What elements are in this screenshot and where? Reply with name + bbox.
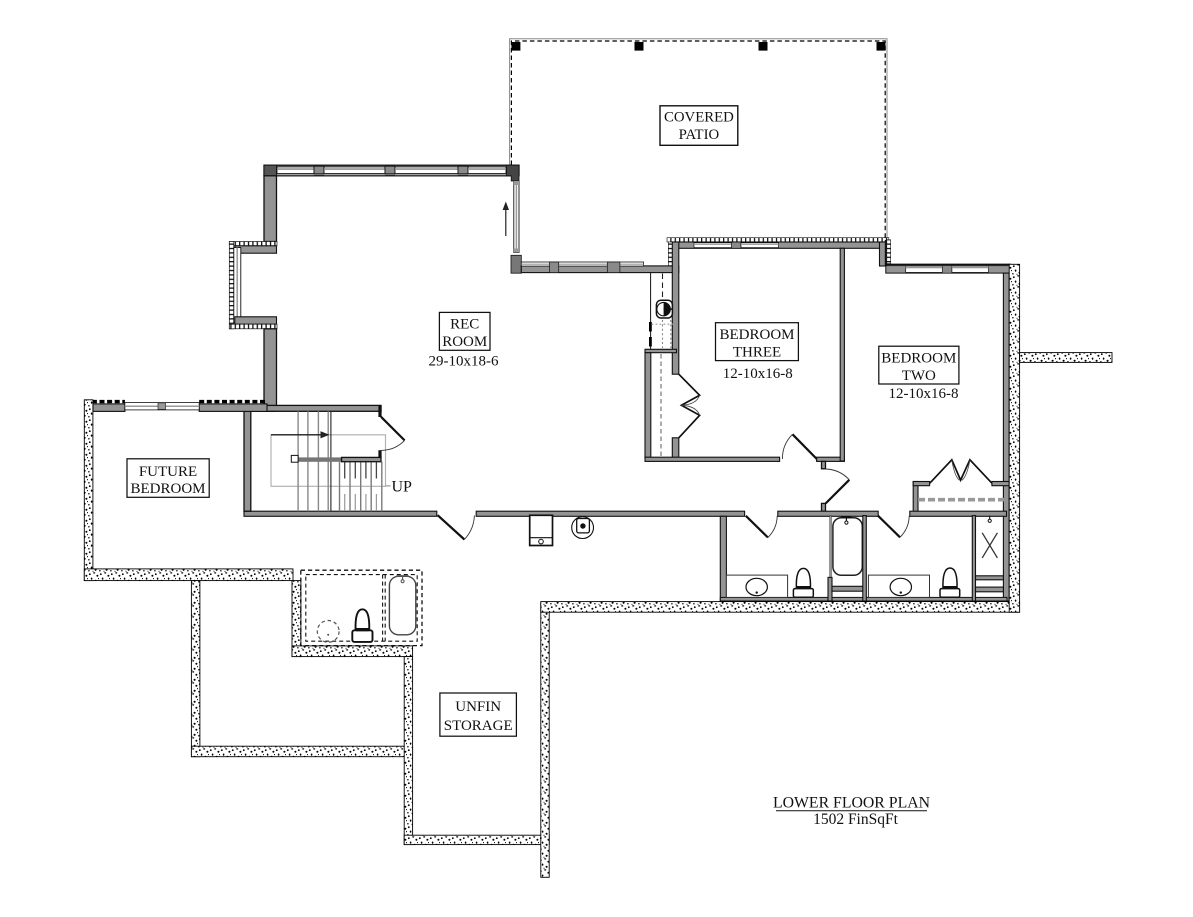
svg-text:FUTURE: FUTURE: [139, 464, 197, 480]
svg-text:BEDROOM: BEDROOM: [719, 327, 794, 343]
svg-text:12-10x16-8: 12-10x16-8: [723, 366, 793, 382]
svg-text:29-10x18-6: 29-10x18-6: [429, 353, 499, 369]
svg-text:12-10x16-8: 12-10x16-8: [889, 386, 959, 402]
svg-text:UNFIN: UNFIN: [455, 699, 501, 715]
svg-text:TWO: TWO: [902, 368, 936, 384]
svg-text:ROOM: ROOM: [442, 334, 487, 350]
svg-text:BEDROOM: BEDROOM: [130, 481, 205, 497]
svg-text:THREE: THREE: [733, 344, 781, 360]
svg-text:BEDROOM: BEDROOM: [881, 351, 956, 367]
svg-text:STORAGE: STORAGE: [444, 718, 513, 734]
svg-text:LOWER FLOOR PLAN: LOWER FLOOR PLAN: [773, 795, 931, 812]
svg-text:1502 FinSqFt: 1502 FinSqFt: [813, 811, 899, 828]
svg-text:PATIO: PATIO: [679, 127, 720, 143]
svg-text:COVERED: COVERED: [664, 110, 734, 126]
svg-text:REC: REC: [450, 317, 479, 333]
svg-text:UP: UP: [392, 478, 413, 495]
